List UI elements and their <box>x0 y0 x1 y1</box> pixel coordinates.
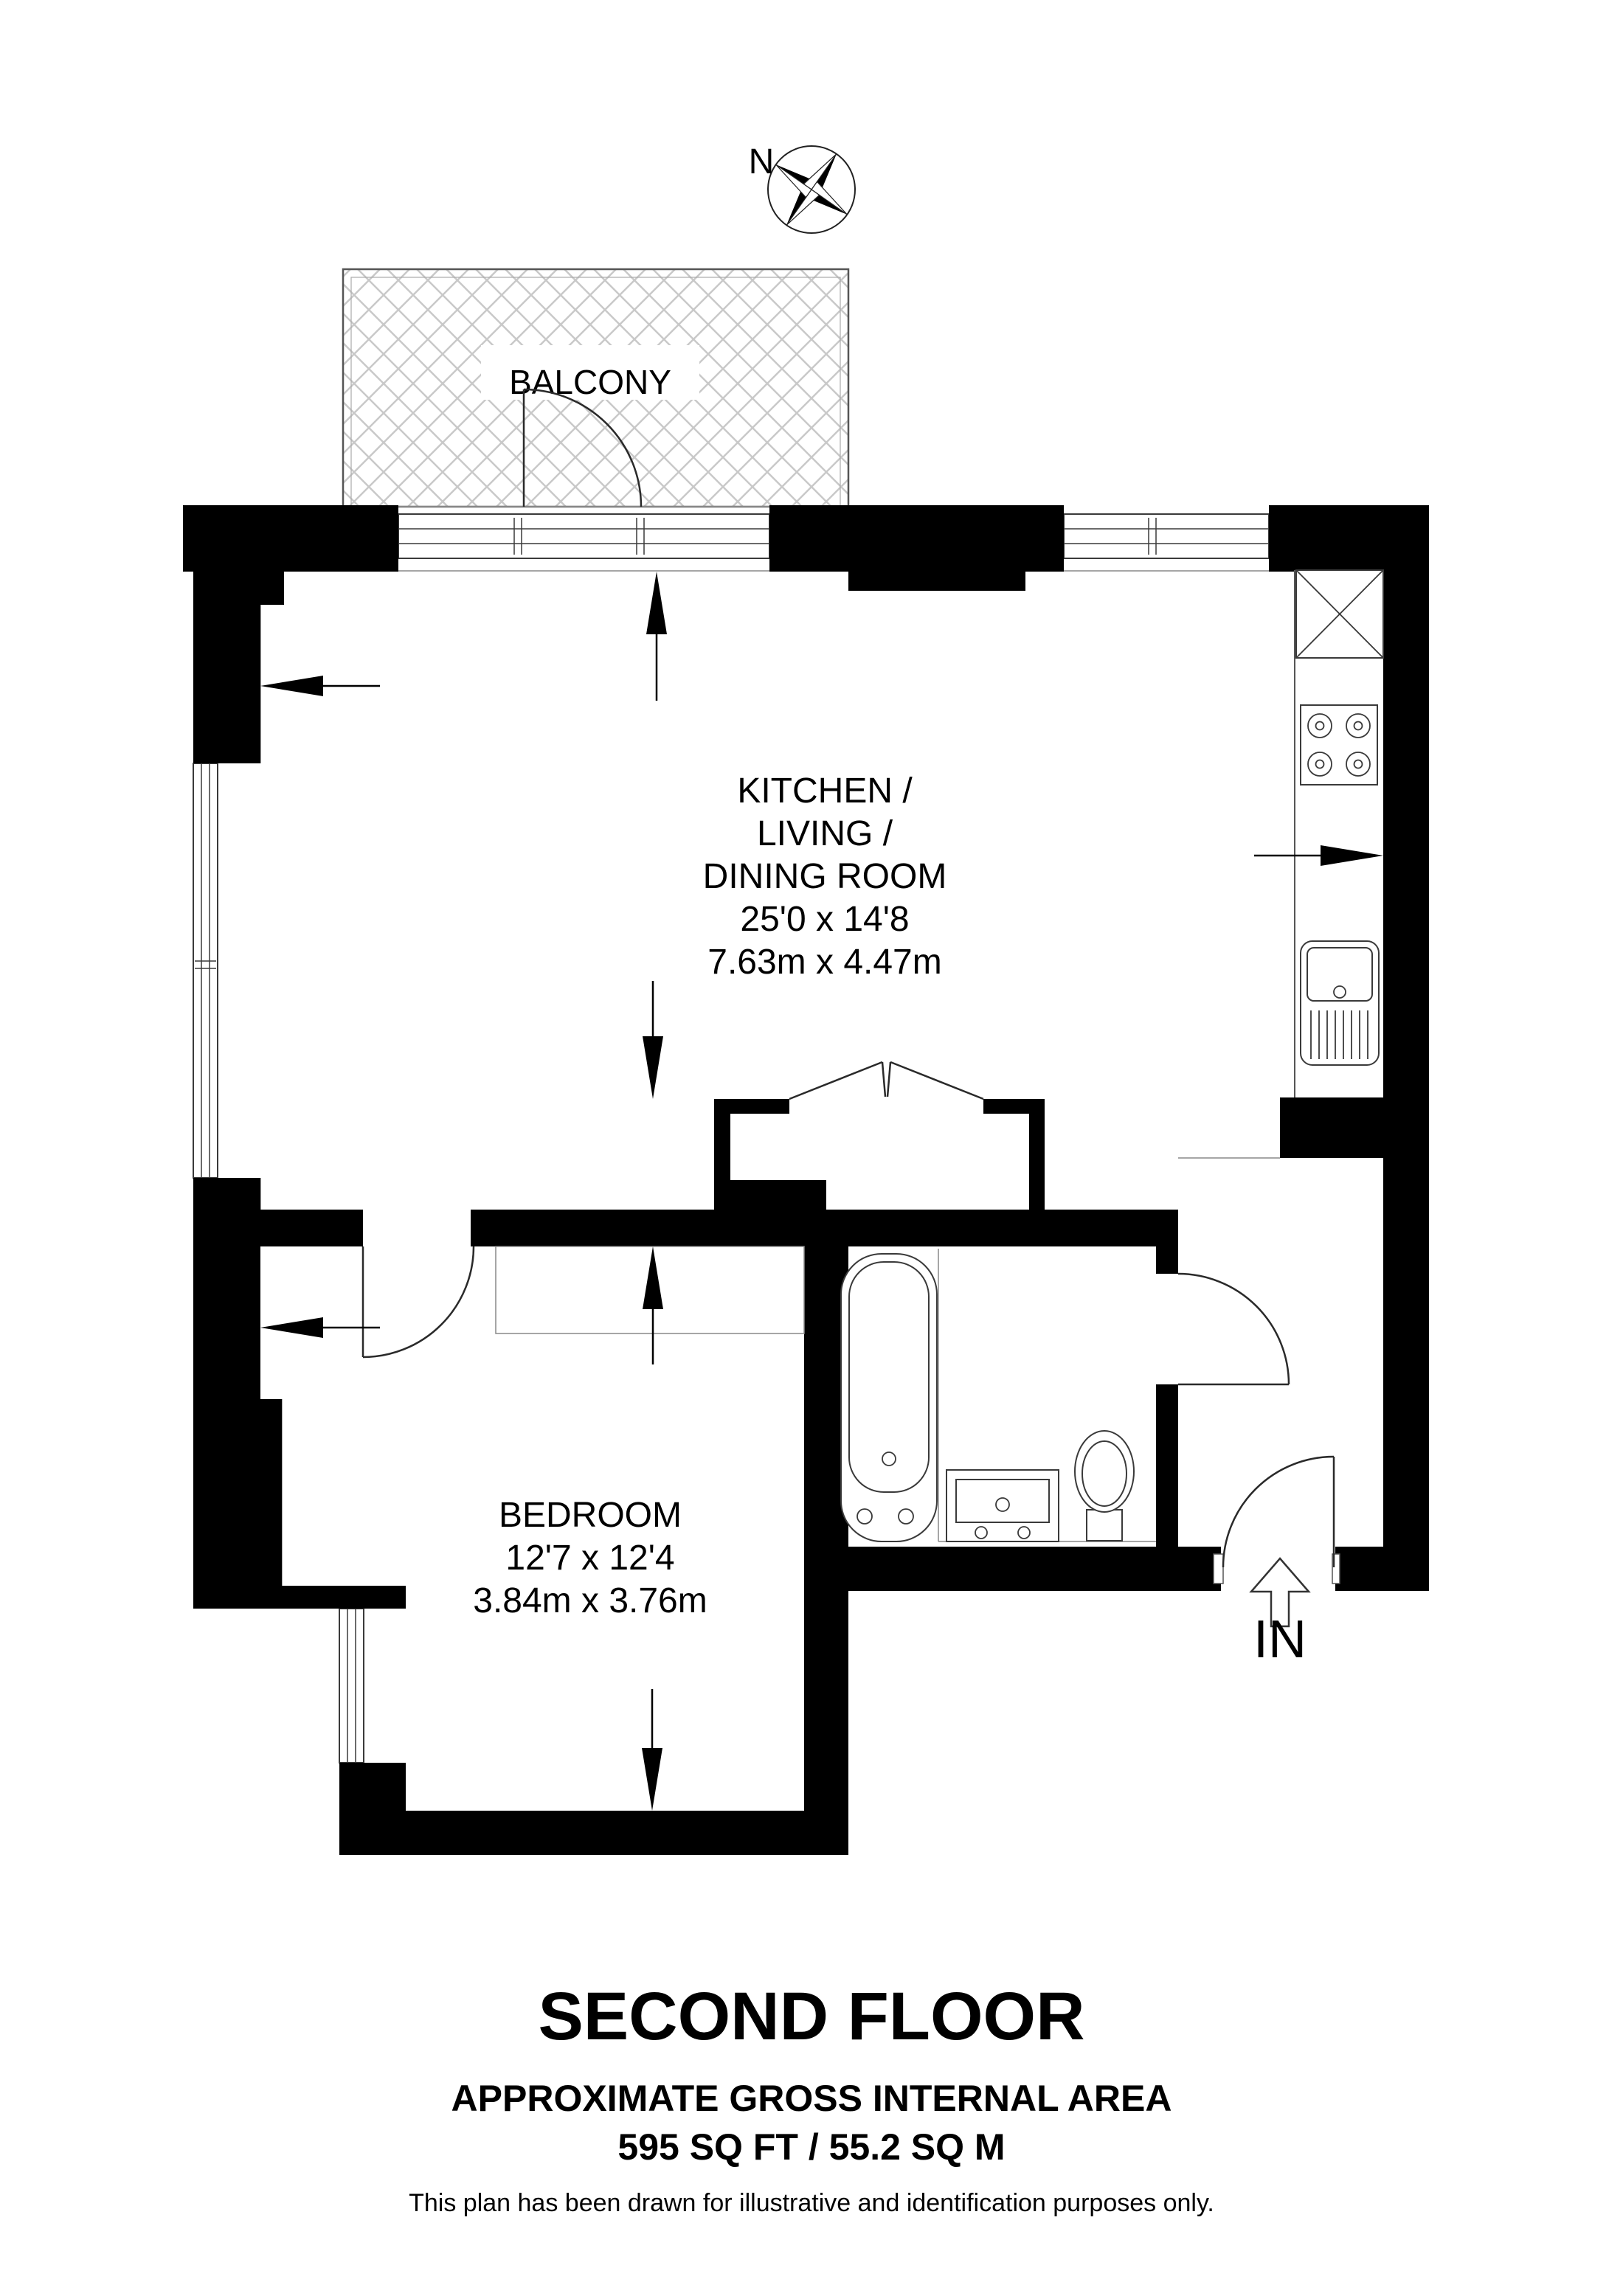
bathroom <box>841 1249 1156 1541</box>
compass-north-label: N <box>749 142 775 181</box>
balcony-label: BALCONY <box>509 363 671 401</box>
kitchen-sink-icon <box>1301 941 1379 1065</box>
arrow-right-icon <box>1254 845 1383 866</box>
kitchen-label-line3: DINING ROOM <box>703 857 947 896</box>
kitchen-fixtures <box>1295 570 1383 1097</box>
arrow-down-kitchen-icon <box>643 981 663 1099</box>
kitchen-size-imperial: 25'0 x 14'8 <box>740 900 909 939</box>
arrow-left-bedroom-icon <box>260 1317 380 1338</box>
bedroom-label-block: BEDROOM 12'7 x 12'4 3.84m x 3.76m <box>473 1496 707 1620</box>
kitchen-label-block: KITCHEN / LIVING / DINING ROOM 25'0 x 14… <box>703 771 947 982</box>
window-top-left <box>398 514 769 558</box>
arrow-down-bedroom-icon <box>642 1689 662 1811</box>
kitchen-label-line2: LIVING / <box>757 814 893 853</box>
arrow-up-icon <box>646 572 667 701</box>
kitchen-storage-unit-icon <box>1296 570 1383 658</box>
bedroom-door <box>363 1246 474 1357</box>
entrance-label: IN <box>1253 1610 1307 1669</box>
floorplan-drawing: N BALCONY <box>0 0 1623 2296</box>
entrance-marker: IN <box>1251 1558 1309 1669</box>
bedroom-size-metric: 3.84m x 3.76m <box>473 1581 707 1620</box>
window-top-right <box>1064 514 1269 558</box>
window-bedroom <box>339 1609 364 1763</box>
closet-double-doors <box>789 1062 983 1099</box>
floor-title: SECOND FLOOR <box>538 1979 1084 2054</box>
footer: SECOND FLOOR APPROXIMATE GROSS INTERNAL … <box>409 1979 1214 2217</box>
floorplan-page: N BALCONY <box>0 0 1623 2296</box>
arrow-left-icon <box>260 676 380 696</box>
disclaimer-text: This plan has been drawn for illustrativ… <box>409 2189 1214 2217</box>
area-heading: APPROXIMATE GROSS INTERNAL AREA <box>451 2078 1172 2119</box>
arrow-up-bedroom-icon <box>643 1246 663 1364</box>
bathroom-door <box>1178 1274 1289 1384</box>
kitchen-size-metric: 7.63m x 4.47m <box>707 943 941 982</box>
interior-face-lines <box>218 571 1383 1586</box>
hob-icon <box>1301 705 1377 785</box>
kitchen-label-line1: KITCHEN / <box>737 771 913 811</box>
toilet-icon <box>1075 1431 1134 1541</box>
bedroom-size-imperial: 12'7 x 12'4 <box>505 1539 674 1578</box>
bathtub-icon <box>841 1254 937 1541</box>
vanity-sink-icon <box>947 1470 1059 1541</box>
window-left <box>193 763 218 1178</box>
compass-rose-icon: N <box>749 142 855 233</box>
walls <box>183 505 1429 1855</box>
balcony: BALCONY <box>343 269 848 507</box>
area-value: 595 SQ FT / 55.2 SQ M <box>617 2126 1005 2168</box>
bedroom-label: BEDROOM <box>499 1496 682 1535</box>
